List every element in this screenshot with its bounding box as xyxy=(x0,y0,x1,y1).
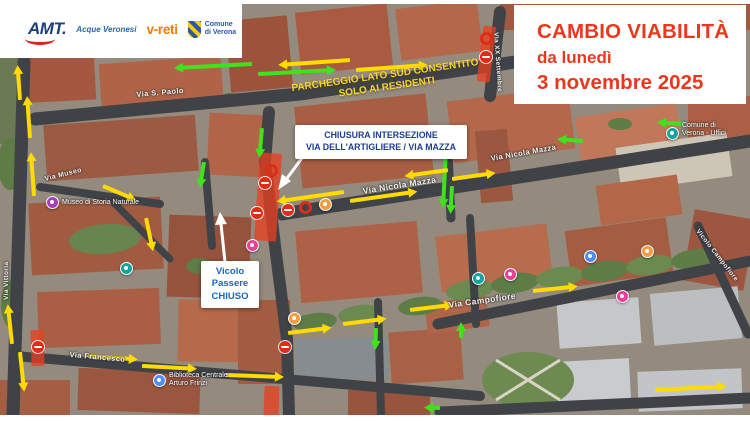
poi-icon xyxy=(504,268,517,281)
closure-callout-box: CHIUSURA INTERSEZIONE VIA DELL'ARTIGLIER… xyxy=(295,125,467,159)
no-entry-icon xyxy=(282,204,294,216)
comune-line2: di Verona xyxy=(205,29,237,37)
closure-pointer-arrow xyxy=(272,156,308,192)
university-poi-icon xyxy=(288,312,301,325)
green-arrow xyxy=(424,407,440,408)
no-entry-icon xyxy=(279,341,291,353)
no-entry-icon xyxy=(259,177,271,189)
vicolo-line3: CHIUSO xyxy=(203,291,257,303)
yellow-arrow xyxy=(31,152,34,196)
title-panel: CAMBIO VIABILITÀ da lunedì 3 novembre 20… xyxy=(514,5,746,104)
school-poi-icon xyxy=(319,198,332,211)
traffic-change-infographic: Via S. Paolo Via Museo Via Nicola Mazza … xyxy=(0,0,750,422)
poi-icon xyxy=(472,272,485,285)
street-label-via-vittoria: Via Vittoria xyxy=(3,261,10,300)
comune-logo-text: Comune di Verona xyxy=(205,21,237,37)
v-reti-logo: v-reti xyxy=(146,22,177,37)
poi-icon xyxy=(246,239,259,252)
green-arrow xyxy=(451,186,452,214)
closure-ring-icon xyxy=(299,201,312,214)
amt-logo: AMT. xyxy=(28,19,66,39)
bottom-margin xyxy=(0,415,750,422)
vicolo-callout-box: Vicolo Passere CHIUSO xyxy=(201,261,259,308)
green-arrow xyxy=(657,122,683,124)
closure-line2: VIA DELL'ARTIGLIERE / VIA MAZZA xyxy=(297,142,465,154)
logo-bar: AMT. Acque Veronesi v-reti Comune di Ver… xyxy=(0,0,242,58)
green-arrow xyxy=(259,128,262,158)
title-line1: CAMBIO VIABILITÀ xyxy=(537,20,746,44)
poi-label-museo: Museo di Storia Naturale xyxy=(62,199,139,207)
title-line3: 3 novembre 2025 xyxy=(537,71,746,95)
closure-line1: CHIUSURA INTERSEZIONE xyxy=(297,130,465,142)
poi-icon xyxy=(584,250,597,263)
poi-icon xyxy=(641,245,654,258)
green-arrow xyxy=(557,139,583,141)
museum-poi-icon xyxy=(46,196,59,209)
closed-road-south xyxy=(263,386,279,417)
poi-label-text: Verona - Uffici xyxy=(682,130,726,138)
yellow-arrow xyxy=(27,96,30,138)
comune-di-verona-logo: Comune di Verona xyxy=(188,21,237,38)
green-arrow xyxy=(375,328,376,350)
closure-ring-icon xyxy=(480,32,493,45)
no-entry-icon xyxy=(32,341,44,353)
verona-shield-icon xyxy=(188,21,201,38)
poi-label-text: Arturo Frinzi xyxy=(169,380,228,388)
poi-label-comune: Comune di Verona - Uffici xyxy=(682,122,726,139)
library-poi-icon xyxy=(153,374,166,387)
title-line2: da lunedì xyxy=(537,48,746,68)
vicolo-line1: Vicolo xyxy=(203,266,257,278)
acque-veronesi-logo: Acque Veronesi xyxy=(76,25,136,34)
municipality-poi-icon xyxy=(666,127,679,140)
no-entry-icon xyxy=(251,207,263,219)
poi-icon xyxy=(616,290,629,303)
vicolo-pointer-arrow xyxy=(212,212,234,264)
comune-line1: Comune xyxy=(205,21,237,29)
vicolo-line2: Passere xyxy=(203,278,257,290)
yellow-arrow xyxy=(226,375,284,377)
poi-label-text: Museo di Storia Naturale xyxy=(62,199,139,206)
poi-icon xyxy=(120,262,133,275)
yellow-arrow xyxy=(18,65,20,100)
poi-label-biblioteca: Biblioteca Centrale Arturo Frinzi xyxy=(169,372,228,389)
